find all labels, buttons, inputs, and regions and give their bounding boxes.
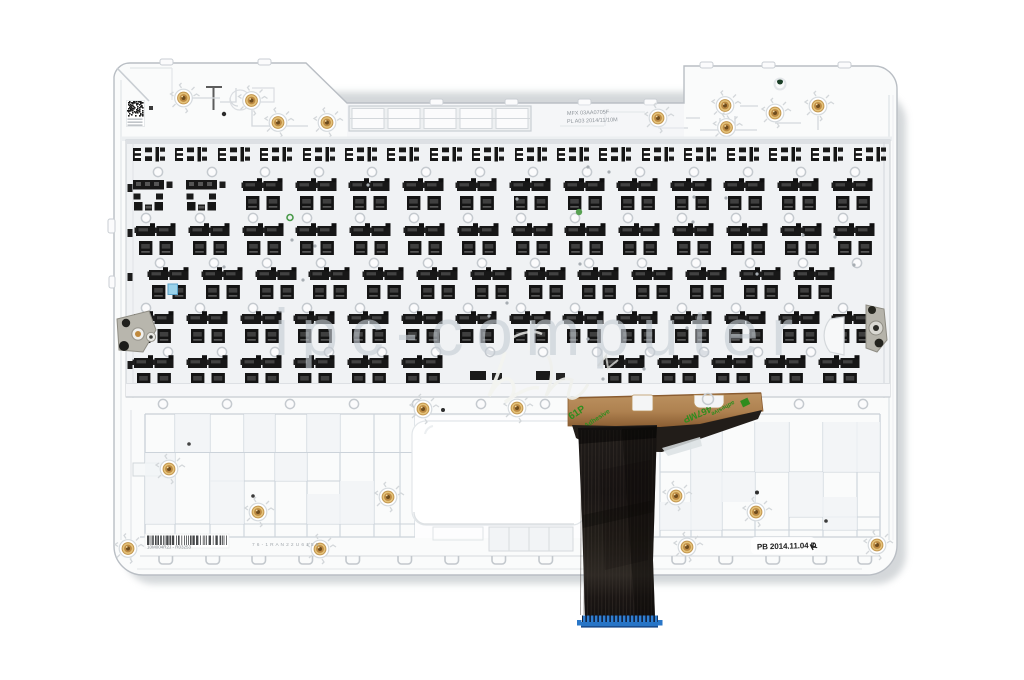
svg-text:10M004R2J - R03253: 10M004R2J - R03253 (147, 545, 192, 550)
svg-text:PB 2014.11.04 D: PB 2014.11.04 D (757, 541, 817, 552)
svg-text:7 6 - 1 R A N 2 2 U 6 1 5 9: 7 6 - 1 R A N 2 2 U 6 1 5 9 (252, 542, 319, 548)
svg-text:ipc-computer: ipc-computer (274, 295, 805, 369)
